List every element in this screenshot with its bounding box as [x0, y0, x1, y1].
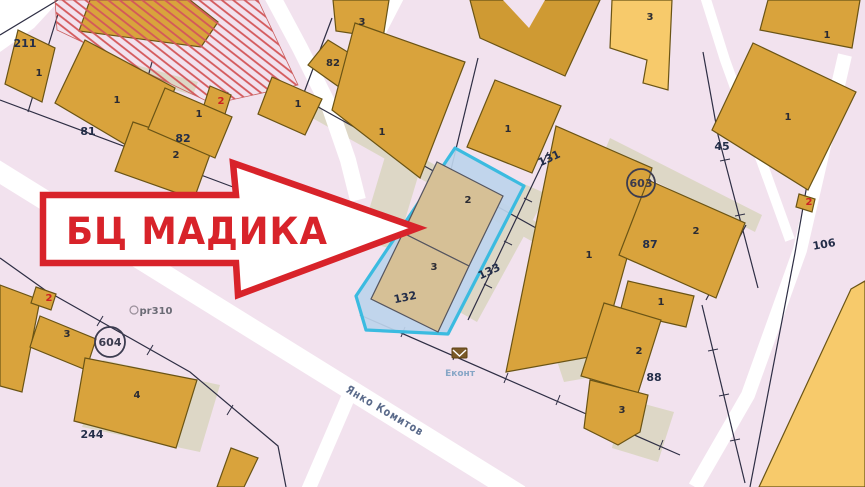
red-building-label: 2 — [218, 96, 225, 107]
building-label: 2 — [636, 346, 643, 357]
parcel-label: 244 — [81, 428, 104, 441]
econt-label: Еконт — [445, 369, 476, 379]
zone-circle-label: 604 — [99, 336, 122, 349]
building-label: 1 — [505, 124, 512, 135]
cadastral-map-view[interactable]: 603 604 211 81 82 131 133 132 87 45 106 … — [0, 0, 865, 487]
red-building-label: 2 — [806, 197, 813, 208]
building-label: 2 — [173, 150, 180, 161]
building-label: 1 — [379, 127, 386, 138]
building-label: 1 — [114, 95, 121, 106]
building-label: 3 — [359, 17, 366, 28]
building-label: 3 — [619, 405, 626, 416]
building-label: 2 — [465, 195, 472, 206]
building-label: 1 — [36, 68, 43, 79]
zone-circle-label: 603 — [630, 177, 653, 190]
building-label: 4 — [134, 390, 141, 401]
building-label: 3 — [64, 329, 71, 340]
cadastral-map[interactable]: 603 604 211 81 82 131 133 132 87 45 106 … — [0, 0, 865, 487]
building-label: 1 — [295, 99, 302, 110]
arrow-title: БЦ МАДИКА — [66, 210, 328, 253]
parcel-label: 45 — [714, 140, 729, 153]
building-label: 1 — [785, 112, 792, 123]
building-label: 2 — [693, 226, 700, 237]
building-label: 3 — [647, 12, 654, 23]
parcel-label: 88 — [646, 371, 661, 384]
parcel-label: 81 — [80, 125, 95, 138]
building-label: 1 — [586, 250, 593, 261]
building-label: 1 — [658, 297, 665, 308]
building-label: 1 — [824, 30, 831, 41]
building-label: 82 — [326, 58, 340, 69]
parcel-label: 211 — [14, 37, 37, 50]
building-label: 1 — [196, 109, 203, 120]
red-building-label: 2 — [46, 293, 53, 304]
parcel-label: 82 — [175, 132, 190, 145]
parcel-label: 87 — [642, 238, 657, 251]
building-label: 3 — [431, 262, 438, 273]
survey-point-label: pr310 — [140, 306, 173, 317]
